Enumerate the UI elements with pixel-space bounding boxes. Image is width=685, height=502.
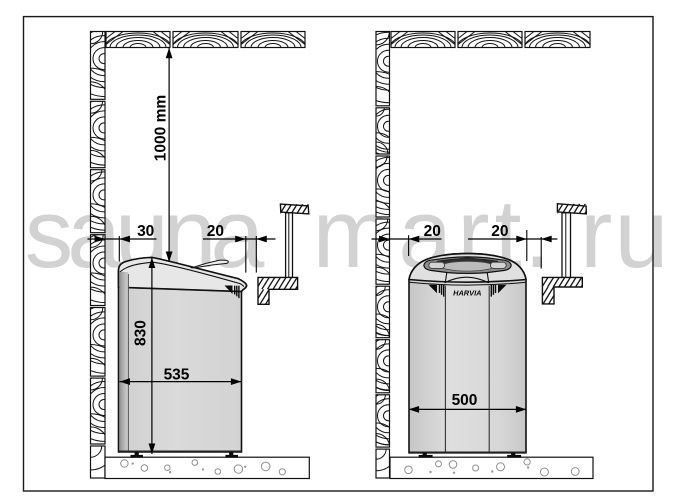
svg-text:500: 500: [452, 392, 478, 409]
svg-text:20: 20: [424, 223, 441, 240]
svg-text:30: 30: [137, 223, 154, 240]
svg-text:1000 mm: 1000 mm: [152, 95, 169, 161]
svg-text:830: 830: [133, 320, 150, 346]
svg-text:HARVIA: HARVIA: [453, 289, 481, 298]
svg-text:20: 20: [207, 223, 224, 240]
svg-text:20: 20: [491, 223, 508, 240]
svg-text:535: 535: [164, 366, 190, 383]
